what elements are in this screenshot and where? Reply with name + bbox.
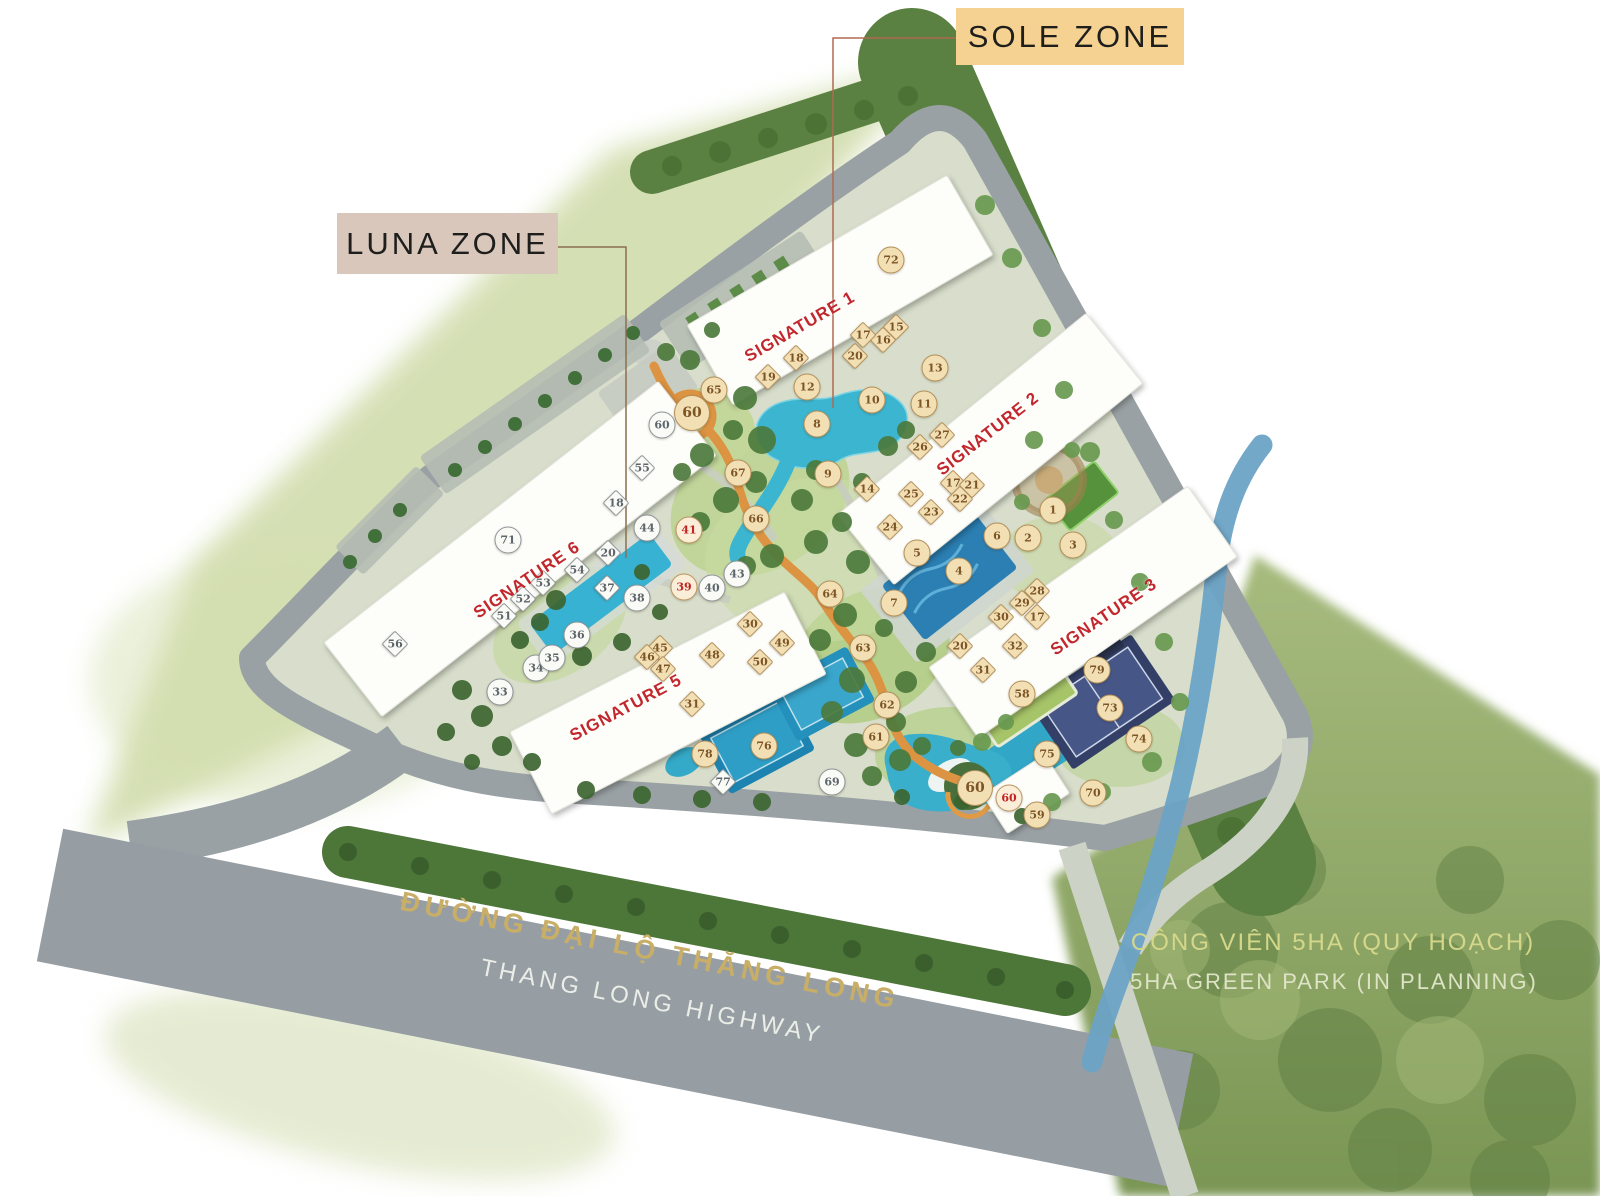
sole-zone-label: SOLE ZONE bbox=[956, 8, 1184, 65]
site-plan-canvas: 1234567891011121358596162636465666770727… bbox=[0, 0, 1600, 1196]
luna-zone-label: LUNA ZONE bbox=[337, 213, 558, 274]
park-name-vietnamese: CÔNG VIÊN 5HA (QUY HOẠCH) bbox=[1131, 929, 1535, 957]
park-name-english: 5HA GREEN PARK (IN PLANNING) bbox=[1130, 969, 1538, 995]
